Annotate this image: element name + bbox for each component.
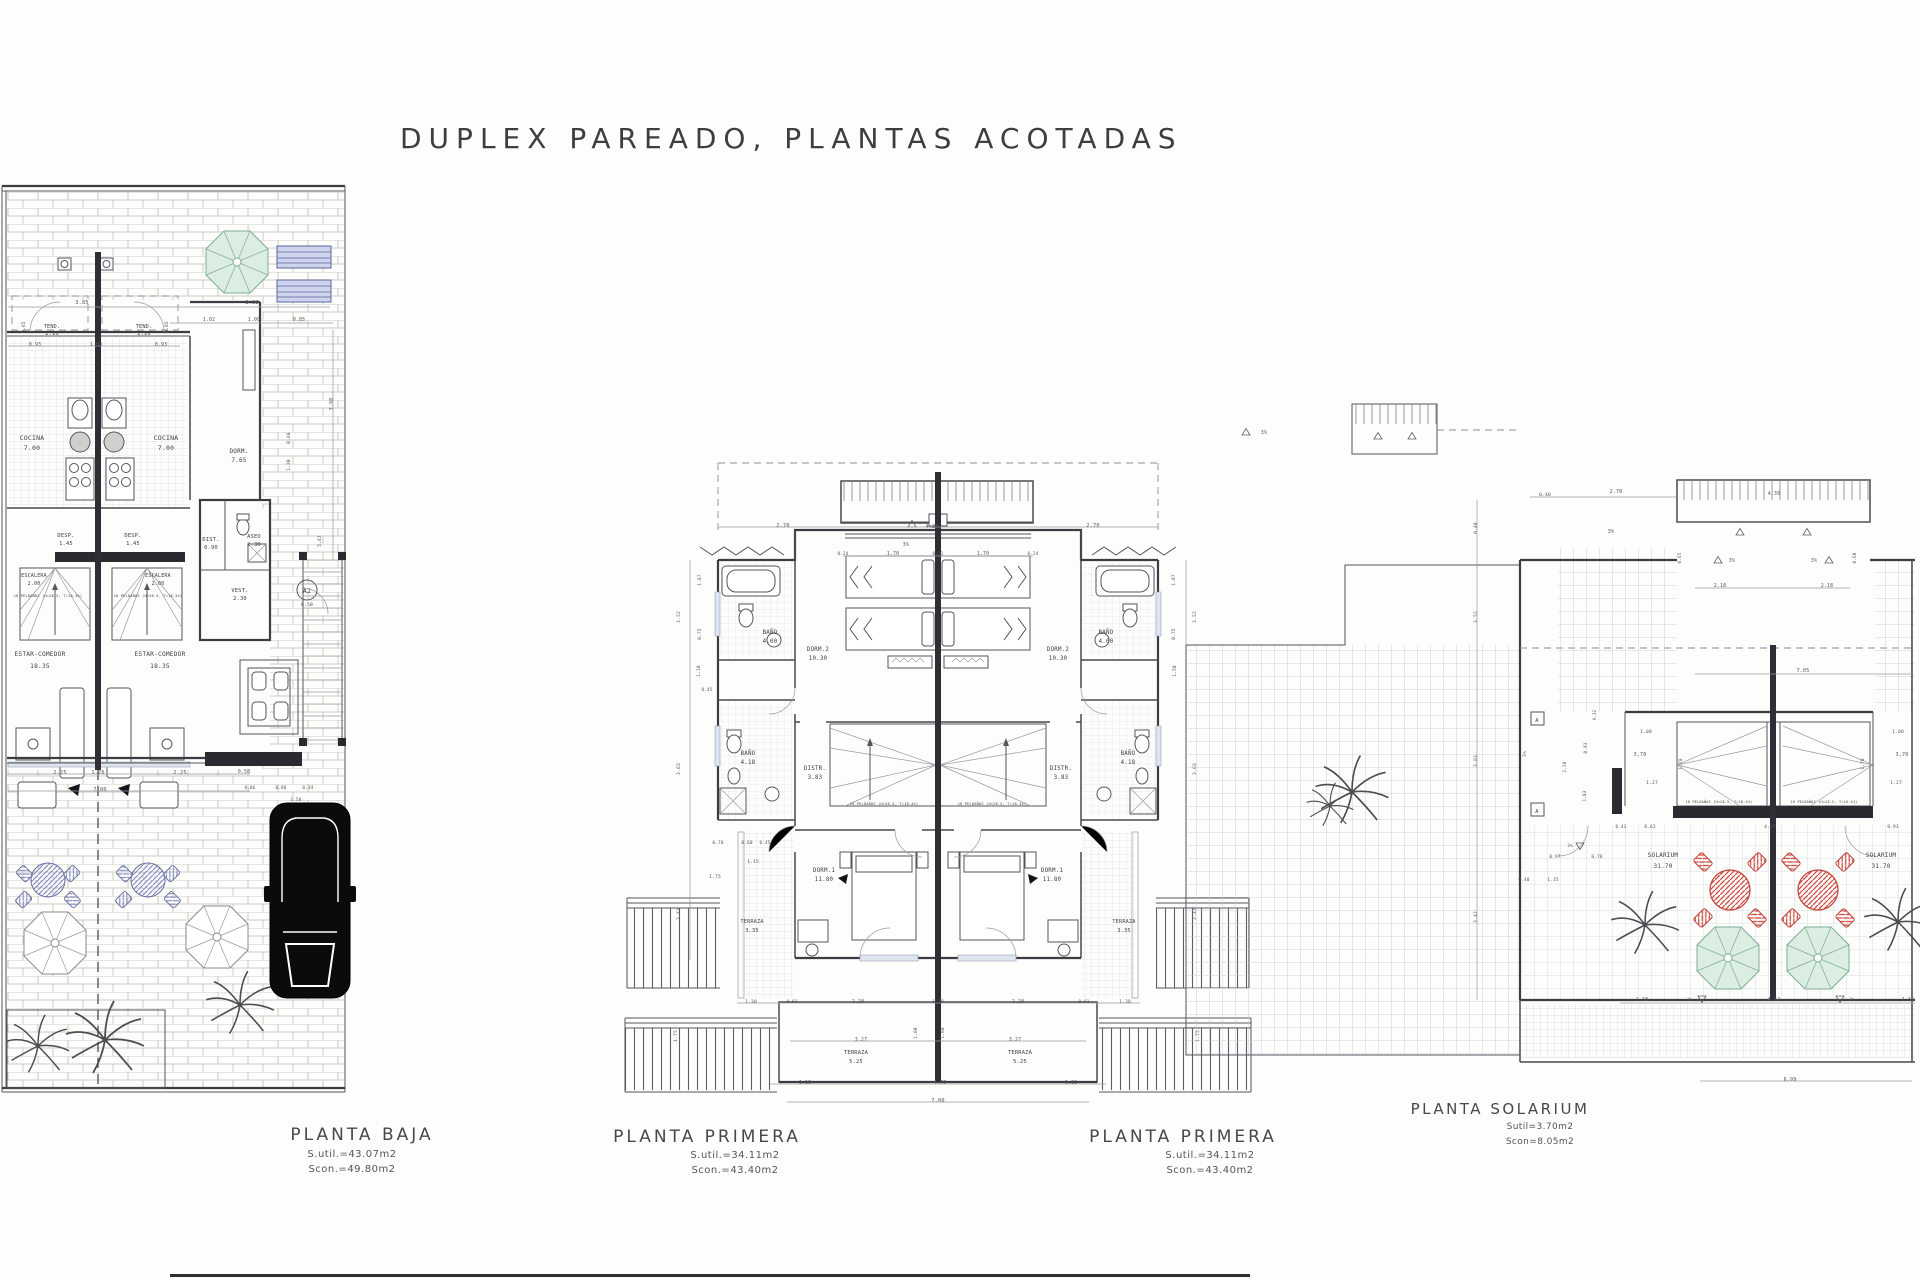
room-label: DORM. — [229, 448, 248, 455]
room-label: 3.35 — [745, 928, 758, 934]
room-label: 4.18 — [1121, 760, 1136, 766]
plan-primera-scon-2: Scon.=43.40m2 — [1166, 1165, 1253, 1176]
dim-label: 1.27 — [1890, 780, 1902, 786]
umbrella-icon — [1787, 927, 1849, 989]
room-label: 31.70 — [1871, 863, 1890, 870]
dim-label: 0.86 — [245, 785, 256, 790]
dim-label: 0.34 — [303, 785, 314, 790]
dim-label: 2.18 — [1714, 583, 1726, 589]
dim-label: 4.39 — [1764, 824, 1776, 830]
room-label: DORM.1 — [1041, 868, 1063, 874]
dim-label: 3.42 — [676, 908, 682, 920]
dim-label: 3% — [1729, 558, 1735, 564]
room-label: 3.83 — [808, 775, 823, 781]
dim-label: 3% — [903, 542, 909, 548]
room-label: 2.00 — [152, 581, 165, 587]
dim-label: 0.40 — [1473, 522, 1479, 534]
floorplan-canvas: TEND.2.10TEND.2.10COCINA7.00COCINA7.00DO… — [0, 0, 1920, 1280]
roof-grid — [1186, 645, 1520, 1055]
dim-label: 1.13 — [799, 1080, 811, 1086]
dim-label: 3.52 — [1473, 611, 1479, 623]
dim-label: 1.75 — [673, 1030, 679, 1042]
room-label: ASEO — [247, 534, 261, 540]
dim-label: 1.80 — [90, 342, 102, 348]
dim-label: 1.27 — [1646, 780, 1658, 786]
dim-label: 6.99 — [1784, 1077, 1797, 1083]
dim-label: 0.40 — [1539, 492, 1551, 498]
room-label: 2.10 — [45, 331, 58, 337]
dim-label: 1.18 — [1636, 997, 1648, 1003]
room-label: 4.00 — [1099, 639, 1114, 645]
dim-label: 0.60 — [1852, 552, 1857, 563]
dim-label: 0.45 — [760, 840, 771, 845]
room-label: 3.35 — [1117, 928, 1130, 934]
umbrella-icon — [24, 912, 86, 974]
dim-label: 1.50 — [291, 797, 302, 802]
room-label: DIST. — [202, 537, 219, 543]
umbrella-icon — [186, 906, 248, 968]
room-label: 5.25 — [849, 1059, 863, 1065]
room-label: 0.90 — [204, 545, 218, 551]
dim-label: 2.20 — [852, 999, 864, 1005]
room-label: DORM.1 — [813, 868, 835, 874]
dim-label: 1.70 — [977, 551, 989, 557]
dim-label: 0.32 — [1592, 709, 1597, 720]
dim-label: 3% — [1811, 558, 1817, 564]
room-label: 3.83 — [1054, 775, 1069, 781]
room-label: 16 PELDAÑOS (H=28.5, T=18.44) — [1791, 799, 1858, 804]
dim-label: 1.18 — [1902, 997, 1914, 1003]
dim-label: 3% — [1608, 529, 1614, 535]
party-wall — [1770, 645, 1776, 1000]
room-label: 16 PELDAÑOS (H=28.5, T=18.44) — [850, 801, 919, 806]
dim-label: 0.58 — [238, 769, 250, 775]
plan-solarium-title: PLANTA SOLARIUM — [1411, 1100, 1590, 1118]
dim-label: 0.93 — [29, 342, 41, 348]
dim-label: 1.67 — [1171, 574, 1177, 586]
room-label: 10.30 — [1049, 656, 1068, 662]
dim-label: 0.93 — [1887, 824, 1899, 830]
dim-label: 0.65 — [1677, 552, 1682, 563]
dim-label: 3% — [1849, 997, 1855, 1003]
room-label: TERRAZA — [740, 919, 764, 925]
room-label: DORM.2 — [807, 647, 829, 653]
room-label: ESTAR-COMEDOR — [14, 651, 65, 658]
plan-primera-title: PLANTA PRIMERA — [613, 1127, 801, 1147]
room-label: A — [1535, 809, 1539, 815]
dim-label: 1.02 — [203, 317, 215, 323]
dim-label: 0.60 — [741, 840, 753, 846]
dim-label: 0.93 — [155, 342, 167, 348]
dim-label: 1.70 — [887, 551, 899, 557]
dim-label: 3.42 — [1473, 911, 1479, 923]
dim-label: 0.80 — [276, 785, 287, 790]
plan-planta-primera: BAÑO4.00BAÑO4.00DORM.210.30DORM.210.30BA… — [625, 463, 1251, 1104]
room-label: DESP. — [124, 533, 141, 539]
room-label: 5.25 — [1013, 1059, 1027, 1065]
dim-label: 7.00 — [931, 1098, 944, 1104]
title-blocks: PLANTA BAJA S.util.=43.07m2 Scon.=49.80m… — [290, 1100, 1589, 1176]
room-label: TEND. — [136, 324, 153, 330]
dim-label: 1.60 — [913, 1027, 919, 1039]
plan-solarium-sutil: Sutil=3.70m2 — [1507, 1122, 1574, 1132]
room-label: COCINA — [20, 434, 45, 442]
dim-label: 1,78 — [1860, 758, 1866, 770]
dim-label: 1.30 — [286, 459, 292, 471]
dim-label: 3% — [1687, 997, 1693, 1003]
room-label: 18.35 — [150, 663, 170, 670]
dim-label: 2.70 — [1086, 523, 1099, 529]
room-label: SOLARIUM — [1648, 852, 1679, 859]
room-label: 1.45 — [126, 541, 140, 547]
dim-label: 0.63 — [1644, 824, 1656, 830]
room-label: BAÑO — [741, 750, 756, 757]
room-label: ESCALERA — [145, 573, 171, 579]
room-label: 11.80 — [1043, 877, 1062, 883]
dim-label: 0.24 — [838, 551, 849, 556]
dim-label: 3.27 — [1009, 1037, 1021, 1043]
room-label: 16 PELDAÑOS (H=28.5, T=18.44) — [14, 593, 83, 598]
dim-label: 3% — [1261, 430, 1267, 436]
dim-label: 0.31 — [933, 551, 944, 556]
dim-label: 1.00 — [1640, 729, 1652, 735]
dim-label: 3.98 — [329, 398, 335, 410]
plan-primera-sutil-2: S.util.=34.11m2 — [1165, 1150, 1254, 1161]
lower-terrace — [1520, 1004, 1915, 1058]
umbrella-icon — [1697, 927, 1759, 989]
dim-label: 0.75 — [697, 628, 703, 640]
room-label: DORM.2 — [1047, 647, 1069, 653]
room-label: TEND. — [44, 324, 61, 330]
wardrobe — [243, 330, 255, 390]
dim-label: 1.60 — [940, 1027, 946, 1039]
room-label: 0.50 — [301, 602, 313, 608]
dim-label: 4.64 — [1768, 997, 1781, 1003]
roof-piece — [1242, 404, 1437, 454]
dim-label: 0.68 — [286, 432, 292, 444]
dim-label: 3.27 — [855, 1037, 867, 1043]
dim-label: 0.75 — [1171, 628, 1177, 640]
room-label: TERRAZA — [1008, 1050, 1033, 1056]
dim-label: 3% — [1522, 751, 1528, 757]
room-label: ESTAR-COMEDOR — [134, 651, 185, 658]
plan-planta-solarium: SOLARIUM31.70SOLARIUM31.70AA16 PELDAÑOS … — [1186, 404, 1920, 1083]
dim-label: 0.70 — [712, 840, 724, 846]
dim-label: 3,70 — [1896, 752, 1909, 758]
plan-baja-scon: Scon.=49.80m2 — [308, 1164, 395, 1175]
drawing-sheet: TEND.2.10TEND.2.10COCINA7.00COCINA7.00DO… — [0, 0, 1920, 1280]
dim-label: 1.30 — [745, 999, 757, 1005]
dim-label: 0.24 — [1028, 551, 1039, 556]
dim-label: 7.00 — [93, 787, 106, 793]
room-label: COCINA — [154, 434, 179, 442]
room-label: 2.00 — [28, 581, 41, 587]
dim-label: 1.67 — [697, 574, 703, 586]
dim-label: 0.65 — [164, 321, 170, 333]
dim-label: 2.70 — [1610, 489, 1623, 495]
plan-solarium-scon: Scon=8.05m2 — [1506, 1137, 1574, 1147]
dim-label: 0.43 — [1616, 824, 1627, 829]
room-label: 16 PELDAÑOS (H=28.5, T=18.44) — [958, 801, 1027, 806]
dim-label: 2.28 — [1562, 761, 1567, 772]
dim-label: 4.20 — [925, 524, 938, 530]
dim-label: 0.93 — [1583, 742, 1588, 753]
umbrella-icon — [206, 231, 268, 293]
dim-label: 4.73 — [934, 1080, 947, 1086]
room-label: BAÑO — [1099, 629, 1114, 636]
room-label: BAÑO — [763, 629, 778, 636]
room-label: 16 PELDAÑOS (H=28.5, T=18.44) — [114, 593, 183, 598]
plan-baja-title: PLANTA BAJA — [290, 1125, 433, 1145]
dim-label: 2.25 — [53, 770, 66, 776]
dim-label: 1.13 — [1065, 1080, 1077, 1086]
room-label: 4.00 — [763, 639, 778, 645]
sheet-bottom-rule — [170, 1274, 1250, 1277]
dim-label: 3,70 — [1634, 752, 1647, 758]
plan-baja-sutil: S.util.=43.07m2 — [307, 1149, 396, 1160]
dim-label: 0.61 — [1079, 999, 1090, 1004]
dim-label: 0.65 — [21, 321, 27, 333]
room-label: 2.10 — [137, 331, 150, 337]
room-label: 10.30 — [809, 656, 828, 662]
dim-label: 1.75 — [709, 874, 721, 880]
room-label: 16 PELDAÑOS (H=28.5, T=18.44) — [1686, 799, 1753, 804]
sheet-title: DUPLEX PAREADO, PLANTAS ACOTADAS — [400, 122, 1160, 155]
dim-label: 1.30 — [1119, 999, 1131, 1005]
room-label: VEST. — [231, 588, 248, 594]
dim-label: 3.03 — [1473, 755, 1479, 767]
porch-step — [205, 752, 302, 766]
plan-primera-scon: Scon.=43.40m2 — [691, 1165, 778, 1176]
balcony-railing — [627, 898, 720, 988]
car-icon — [264, 803, 356, 998]
room-label: 11.80 — [815, 877, 834, 883]
room-label: 2.30 — [247, 542, 261, 548]
dim-label: 0.61 — [787, 999, 798, 1004]
room-label: 31.70 — [1653, 863, 1672, 870]
dim-label: 1.03 — [1582, 790, 1587, 801]
dim-label: 4.39 — [1768, 491, 1780, 497]
room-label: 7.00 — [24, 444, 40, 452]
room-label: 18.35 — [30, 663, 50, 670]
terrace-railing — [625, 1018, 777, 1092]
dim-label: 0.85 — [293, 317, 305, 323]
plan-planta-baja: TEND.2.10TEND.2.10COCINA7.00COCINA7.00DO… — [2, 186, 356, 1092]
dim-label: 2.70 — [776, 523, 789, 529]
dim-label: 0.40 — [1518, 877, 1530, 883]
room-label: DISTR. — [1050, 766, 1072, 772]
dim-label: 1.15 — [747, 859, 759, 865]
room-label: DESP. — [57, 533, 74, 539]
dim-label: 5.43 — [317, 535, 323, 547]
dim-label: 1.26 — [91, 770, 104, 776]
dim-label: 1,78 — [1678, 758, 1684, 770]
dim-label: 3.63 — [676, 763, 682, 775]
dim-label: 2.18 — [1821, 583, 1833, 589]
room-label: SOLARIUM — [1866, 852, 1897, 859]
room-label: 7.65 — [231, 457, 246, 464]
dim-label: 1.38 — [932, 999, 944, 1005]
plan-primera-title-2: PLANTA PRIMERA — [1089, 1127, 1277, 1147]
dim-label: 2.88 — [245, 300, 258, 306]
dim-label: 0.97 — [1549, 854, 1561, 860]
dim-label: 2.20 — [1012, 999, 1024, 1005]
dim-label: 3.52 — [676, 611, 682, 623]
dim-label: 0.78 — [1591, 854, 1603, 860]
room-label: ESCALERA — [21, 573, 47, 579]
room-label: DISTR. — [804, 766, 826, 772]
room-label: 7.00 — [158, 444, 174, 452]
room-label: 1.45 — [59, 541, 73, 547]
dim-label: 1.50 — [1172, 665, 1178, 677]
dim-label: 3.85 — [75, 300, 88, 306]
dim-label: 3.52 — [1192, 611, 1198, 623]
dim-label: 1.00 — [1892, 729, 1904, 735]
room-label: 2.30 — [233, 596, 247, 602]
room-label: BAÑO — [1121, 750, 1136, 757]
room-label: 4.18 — [741, 760, 756, 766]
room-label: A — [1535, 718, 1539, 724]
room-label: TERRAZA — [844, 1050, 869, 1056]
dim-label: 1.10 — [696, 665, 702, 677]
party-wall — [95, 252, 101, 770]
dim-label: 7.05 — [1797, 668, 1810, 674]
room-label: TERRAZA — [1112, 919, 1136, 925]
dim-label: 0.45 — [702, 687, 713, 692]
dim-label: 1.35 — [1547, 877, 1559, 883]
room-label: A2 — [303, 587, 311, 595]
dim-label: 2.25 — [173, 770, 186, 776]
plan-primera-sutil: S.util.=34.11m2 — [690, 1150, 779, 1161]
dim-label: 3% — [1567, 843, 1573, 848]
dim-label: 1.00 — [248, 317, 260, 323]
